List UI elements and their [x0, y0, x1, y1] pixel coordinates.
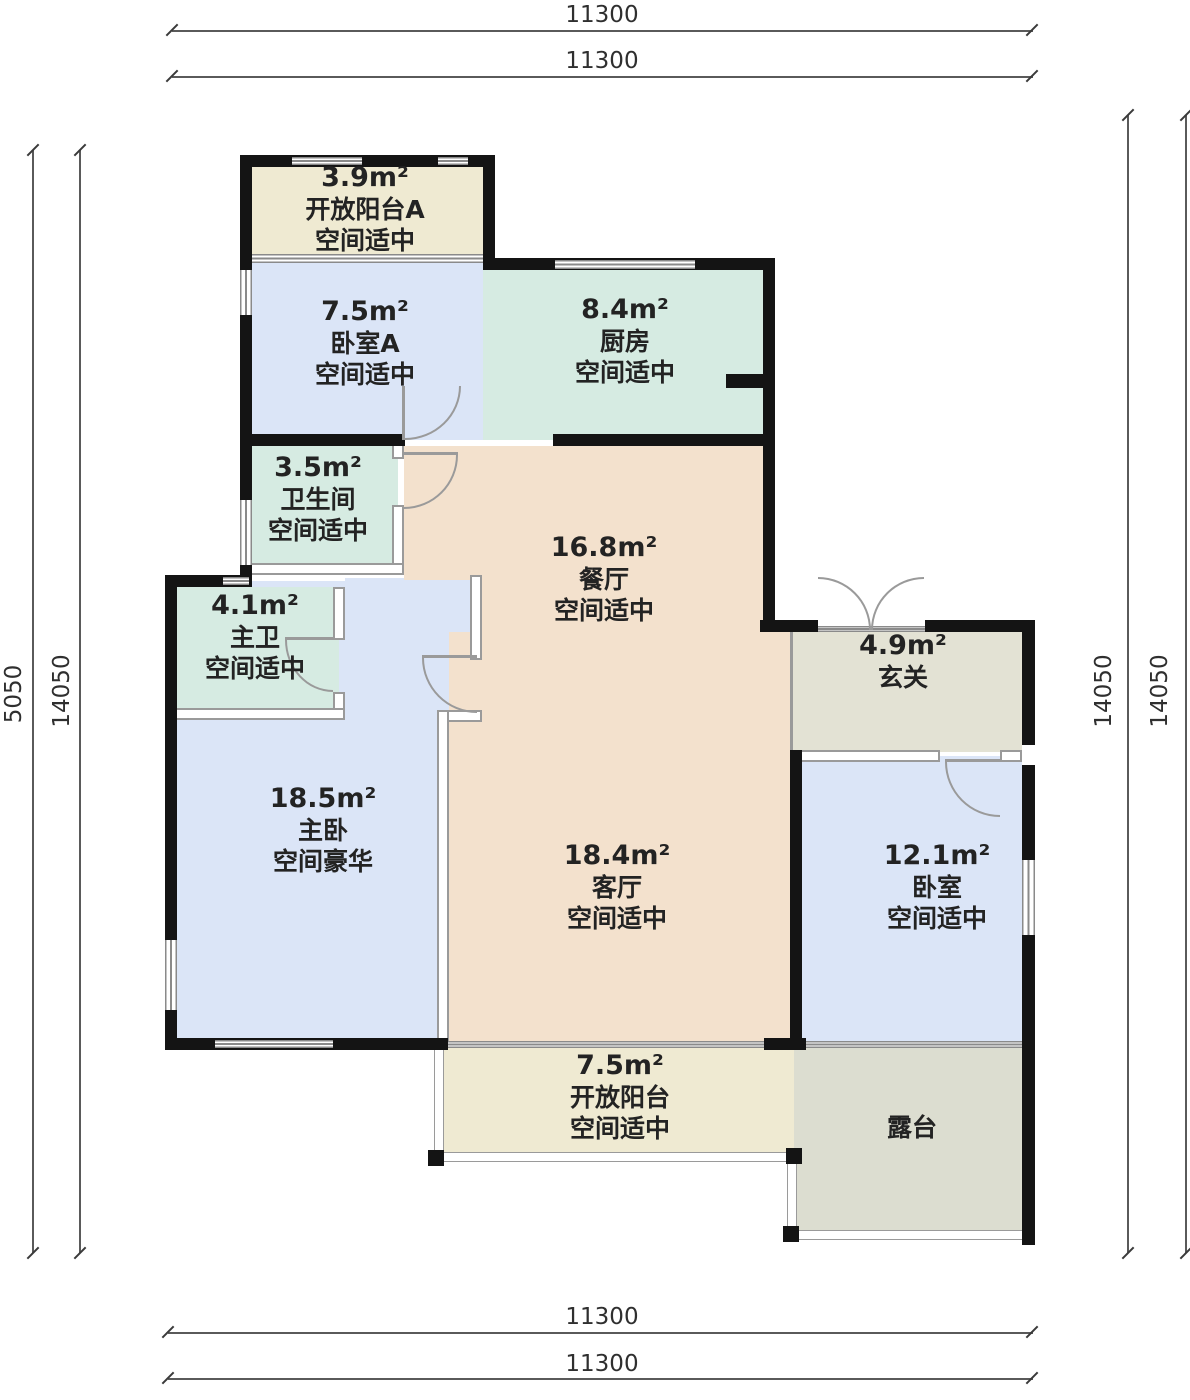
room-name: 客厅: [507, 872, 727, 903]
room-desc: 空间适中: [208, 515, 428, 546]
room-name: 餐厅: [494, 564, 714, 595]
room-area: 3.9m²: [255, 162, 475, 194]
room-area: 18.4m²: [507, 840, 727, 872]
dimension-line: [172, 30, 1033, 32]
room-label-balcony: 7.5m² 开放阳台 空间适中: [510, 1050, 730, 1144]
room-label-entry: 4.9m² 玄关: [793, 630, 1013, 693]
room-area: 7.5m²: [510, 1050, 730, 1082]
window: [240, 270, 252, 315]
room-desc: 空间适中: [145, 653, 365, 684]
wall-partition: [790, 750, 940, 762]
room-living-fill: [449, 632, 796, 1044]
wall-partition: [240, 563, 404, 575]
room-label-master-bath: 4.1m² 主卫 空间适中: [145, 590, 365, 684]
room-name: 厨房: [515, 326, 735, 357]
room-label-kitchen: 8.4m² 厨房 空间适中: [515, 294, 735, 388]
window: [215, 1040, 333, 1048]
room-label-living: 18.4m² 客厅 空间适中: [507, 840, 727, 934]
dimension-line: [172, 76, 1033, 78]
window: [165, 940, 177, 1010]
room-label-dining: 16.8m² 餐厅 空间适中: [494, 532, 714, 626]
window: [806, 1041, 1022, 1048]
railing: [787, 1230, 1032, 1240]
room-area: 8.4m²: [515, 294, 735, 326]
room-label-bedroom: 12.1m² 卧室 空间适中: [827, 840, 1047, 934]
railing-post: [428, 1150, 444, 1166]
wall: [425, 1038, 448, 1050]
dimension-label: 11300: [542, 1351, 662, 1377]
wall: [240, 155, 252, 267]
wall-partition: [470, 575, 482, 660]
room-name: 开放阳台: [510, 1082, 730, 1113]
room-name: 开放阳台A: [255, 194, 475, 225]
room-area: 12.1m²: [827, 840, 1047, 872]
room-area: 18.5m²: [213, 783, 433, 815]
dimension-line: [32, 150, 34, 1253]
room-label-balcony-a: 3.9m² 开放阳台A 空间适中: [255, 162, 475, 256]
wall-partition: [165, 708, 345, 720]
dimension-line: [79, 150, 81, 1253]
entry-double-door-right-arc: [871, 577, 924, 630]
wall-partition: [437, 710, 449, 1044]
room-desc: 空间豪华: [213, 846, 433, 877]
door-leaf: [402, 386, 405, 440]
room-name: 主卧: [213, 815, 433, 846]
door-leaf: [422, 655, 477, 658]
room-label-terrace: 露台: [802, 1112, 1022, 1143]
dimension-label: 14050: [1147, 631, 1173, 751]
wall: [553, 434, 766, 446]
room-name: 玄关: [793, 662, 1013, 693]
dimension-label: 14050: [1091, 631, 1117, 751]
room-area: 16.8m²: [494, 532, 714, 564]
room-name: 卫生间: [208, 484, 428, 515]
room-area: 3.5m²: [208, 452, 428, 484]
room-label-bathroom: 3.5m² 卫生间 空间适中: [208, 452, 428, 546]
window: [448, 1041, 764, 1048]
dimension-label: 14050: [49, 631, 75, 751]
room-name: 卧室A: [255, 328, 475, 359]
dimension-label: 5050: [1, 634, 27, 754]
room-label-master-bedroom: 18.5m² 主卧 空间豪华: [213, 783, 433, 877]
room-desc: 空间适中: [515, 357, 735, 388]
room-desc: 空间适中: [827, 903, 1047, 934]
room-name: 主卫: [145, 622, 365, 653]
door-leaf: [945, 759, 1000, 762]
room-desc: 空间适中: [255, 225, 475, 256]
railing-post: [783, 1226, 799, 1242]
wall: [240, 434, 405, 446]
railing: [434, 1044, 444, 1160]
room-label-bedroom-a: 7.5m² 卧室A 空间适中: [255, 296, 475, 390]
window: [555, 260, 695, 269]
room-desc: 空间适中: [255, 359, 475, 390]
room-area: 4.1m²: [145, 590, 365, 622]
window: [1022, 745, 1035, 765]
dimension-label: 11300: [542, 48, 662, 74]
wall: [790, 750, 802, 1050]
room-area: 7.5m²: [255, 296, 475, 328]
floor-plan: 3.9m² 开放阳台A 空间适中 7.5m² 卧室A 空间适中 8.4m² 厨房…: [0, 0, 1190, 1400]
dimension-label: 11300: [542, 2, 662, 28]
railing-post: [786, 1148, 802, 1164]
window: [223, 577, 249, 585]
dimension-line: [1127, 115, 1129, 1253]
room-desc: 空间适中: [494, 595, 714, 626]
railing: [434, 1152, 794, 1162]
room-area: 4.9m²: [793, 630, 1013, 662]
room-name: 露台: [802, 1112, 1022, 1143]
dimension-line: [168, 1332, 1033, 1334]
room-desc: 空间适中: [510, 1113, 730, 1144]
dimension-line: [168, 1378, 1033, 1380]
dimension-label: 11300: [542, 1304, 662, 1330]
room-name: 卧室: [827, 872, 1047, 903]
wall-partition: [1000, 750, 1022, 762]
entry-double-door-left-arc: [818, 577, 871, 630]
dimension-line: [1185, 115, 1187, 1253]
railing: [787, 1160, 797, 1236]
room-desc: 空间适中: [507, 903, 727, 934]
wall: [483, 155, 495, 267]
